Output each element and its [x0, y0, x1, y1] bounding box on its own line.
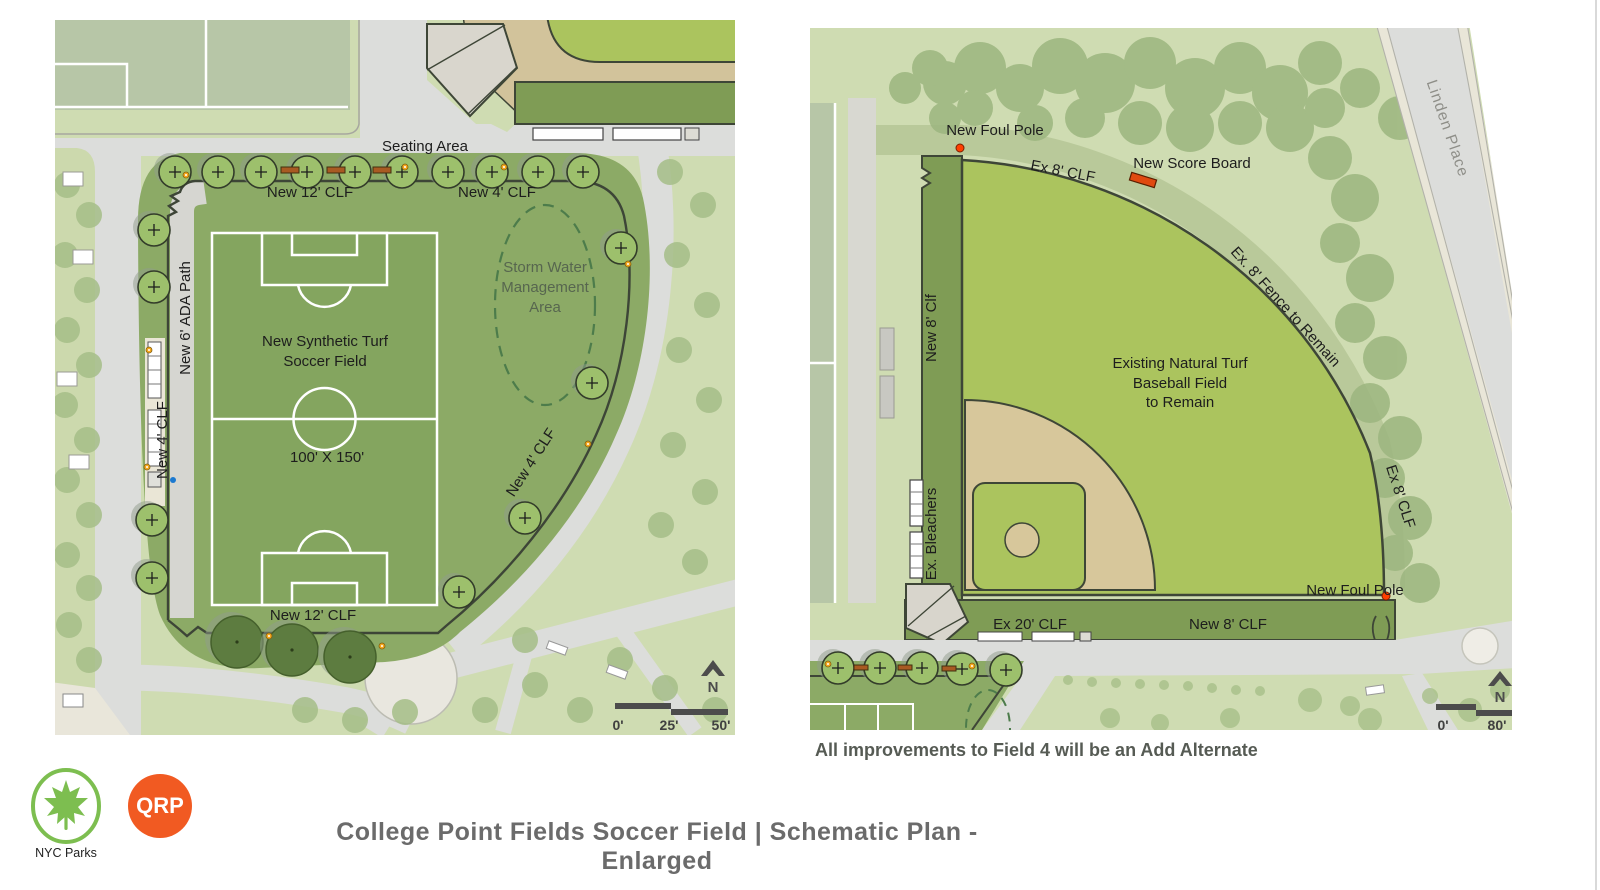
baseball-field-plan: N 0' 80' New Foul Pole Ex 8' CLF New Sco… [810, 28, 1512, 730]
storm-label-line2: Management [501, 279, 589, 296]
new-8-clf-bottom-label: New 8' CLF [1189, 616, 1267, 633]
seating-bleachers [533, 128, 699, 140]
field-title-line1: New Synthetic Turf [262, 333, 389, 350]
new-4-clf-top-label: New 4' CLF [458, 184, 536, 201]
south-plaza-circle [1462, 628, 1498, 664]
field-title-line2: Baseball Field [1133, 375, 1227, 392]
scale-mid: 25' [660, 717, 679, 733]
ada-path-label: New 6' ADA Path [177, 261, 194, 375]
add-alternate-note: All improvements to Field 4 will be an A… [815, 740, 1258, 761]
north-label: N [708, 679, 719, 696]
north-label: N [1495, 689, 1506, 706]
pitcher-mound [1005, 523, 1039, 557]
new-8-clf-left-label: New 8' Clf [923, 293, 940, 362]
seating-area-label: Seating Area [382, 138, 469, 155]
soccer-pitch [212, 233, 437, 605]
nyc-parks-logo [30, 768, 102, 844]
ex-20-clf-label: Ex 20' CLF [993, 616, 1067, 633]
scale-zero: 0' [612, 717, 623, 733]
field-title-line2: Soccer Field [283, 353, 366, 370]
new-foul-pole-bottom-label: New Foul Pole [1306, 582, 1404, 599]
soccer-field-plan: N 0' 25' 50' Seating Area New 12' CLF Ne… [55, 20, 735, 735]
new-12-clf-top-label: New 12' CLF [267, 184, 353, 201]
storm-label-line1: Storm Water [503, 259, 587, 276]
window-edge [1595, 0, 1597, 890]
scale-end: 50' [712, 717, 731, 733]
nyc-parks-label: NYC Parks [22, 846, 110, 860]
field-title-line1: Existing Natural Turf [1112, 355, 1248, 372]
adjacent-field-northwest [55, 20, 360, 138]
page-title: College Point Fields Soccer Field | Sche… [292, 818, 1022, 876]
score-board-label: New Score Board [1133, 155, 1251, 172]
storm-label-line3: Area [529, 299, 561, 316]
new-12-clf-bottom-label: New 12' CLF [270, 607, 356, 624]
bench-icons [281, 167, 391, 173]
scale-zero: 0' [1437, 717, 1448, 730]
foul-pole-top-icon [956, 144, 964, 152]
south-bleacher-icons [978, 632, 1091, 641]
new-foul-pole-top-label: New Foul Pole [946, 122, 1044, 139]
ex-bleachers-label: Ex. Bleachers [923, 488, 940, 581]
field-dims-label: 100' X 150' [290, 449, 364, 466]
qrp-label: QRP [136, 793, 184, 819]
scale-end: 80' [1488, 717, 1507, 730]
new-4-clf-left-label: New 4' CLF [154, 401, 171, 479]
field-title-line3: to Remain [1146, 394, 1214, 411]
qrp-logo: QRP [128, 774, 192, 838]
